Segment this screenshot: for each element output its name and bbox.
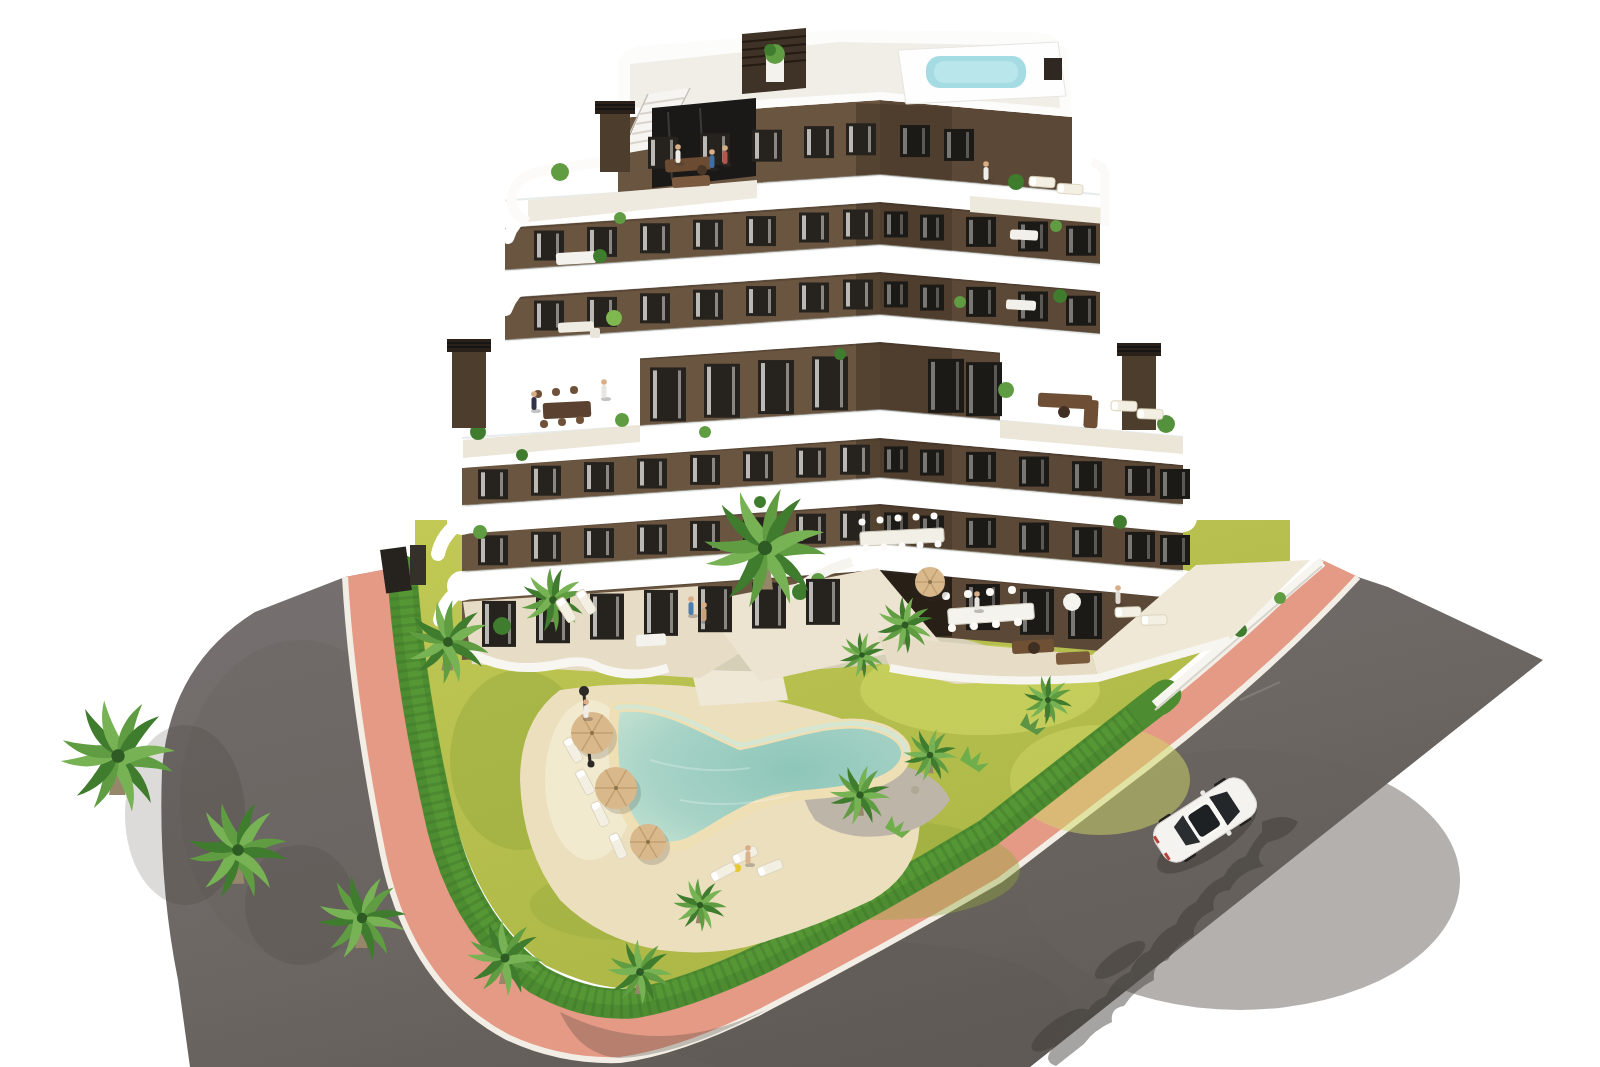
window xyxy=(966,452,996,482)
gate-pillar xyxy=(410,545,426,585)
window xyxy=(884,211,908,237)
render-canvas xyxy=(0,0,1600,1067)
window xyxy=(752,130,782,162)
architectural-render xyxy=(0,0,1600,1067)
window xyxy=(900,125,930,157)
outdoor-sofa xyxy=(1056,651,1091,665)
dining-table xyxy=(543,401,592,419)
window xyxy=(1066,296,1096,326)
lamppost-head xyxy=(579,686,589,696)
sun-lounger xyxy=(1057,183,1084,195)
coffee-table xyxy=(697,165,707,175)
window xyxy=(843,279,873,309)
window xyxy=(966,518,996,548)
window xyxy=(804,126,834,158)
window xyxy=(1125,466,1155,496)
band-round-cap xyxy=(1169,504,1197,532)
roof-plant xyxy=(764,44,776,56)
window xyxy=(584,528,614,558)
window xyxy=(812,356,848,410)
window xyxy=(584,462,614,492)
window xyxy=(884,446,908,472)
chimney xyxy=(595,101,635,172)
window xyxy=(690,455,720,485)
band-round-cap xyxy=(1086,264,1114,292)
white-sofa xyxy=(556,251,597,265)
small-table xyxy=(636,633,667,647)
window xyxy=(1125,532,1155,562)
window xyxy=(746,286,776,316)
coffee-table xyxy=(1028,642,1040,654)
window xyxy=(758,360,794,414)
window xyxy=(920,450,944,476)
window xyxy=(1072,461,1102,491)
window xyxy=(590,594,624,640)
gravel xyxy=(911,786,919,794)
white-sofa xyxy=(1006,299,1036,311)
window xyxy=(966,217,996,247)
window xyxy=(1066,226,1096,256)
window xyxy=(478,469,508,499)
window xyxy=(1160,535,1190,565)
window xyxy=(799,212,829,242)
chimney xyxy=(447,339,491,428)
window xyxy=(637,525,667,555)
window xyxy=(920,215,944,241)
window xyxy=(746,216,776,246)
window xyxy=(920,285,944,311)
corner-sofa xyxy=(1083,400,1098,429)
window xyxy=(1072,527,1102,557)
sun-lounger xyxy=(1141,615,1167,626)
roof-vent xyxy=(1044,58,1062,80)
window xyxy=(966,287,996,317)
sun-lounger xyxy=(1029,176,1056,188)
window xyxy=(693,290,723,320)
lamppost-base xyxy=(588,761,595,768)
chair xyxy=(590,328,600,338)
window xyxy=(650,367,686,421)
window xyxy=(944,129,974,161)
band-round-cap xyxy=(1086,334,1114,362)
window xyxy=(966,362,1002,416)
window xyxy=(846,123,876,155)
white-sofa xyxy=(1010,229,1038,240)
window xyxy=(840,445,870,475)
window xyxy=(796,448,826,478)
window xyxy=(640,223,670,253)
window xyxy=(743,451,773,481)
window xyxy=(478,535,508,565)
window xyxy=(531,532,561,562)
window xyxy=(704,364,740,418)
window xyxy=(637,459,667,489)
round-table xyxy=(1063,593,1081,611)
window xyxy=(799,282,829,312)
sun-lounger xyxy=(1115,607,1141,618)
palm-shadow xyxy=(245,845,355,965)
window xyxy=(644,590,678,636)
window xyxy=(531,466,561,496)
window xyxy=(1019,523,1049,553)
chaise xyxy=(558,321,594,333)
window xyxy=(640,293,670,323)
rooftop-pool-water xyxy=(934,61,1018,83)
window xyxy=(928,359,964,413)
window xyxy=(1160,469,1190,499)
window xyxy=(806,579,840,625)
coffee-table xyxy=(1058,406,1070,418)
sun-lounger xyxy=(1137,409,1163,420)
window xyxy=(843,209,873,239)
window xyxy=(693,220,723,250)
sun-lounger xyxy=(1111,401,1137,412)
window xyxy=(1019,457,1049,487)
window xyxy=(884,281,908,307)
